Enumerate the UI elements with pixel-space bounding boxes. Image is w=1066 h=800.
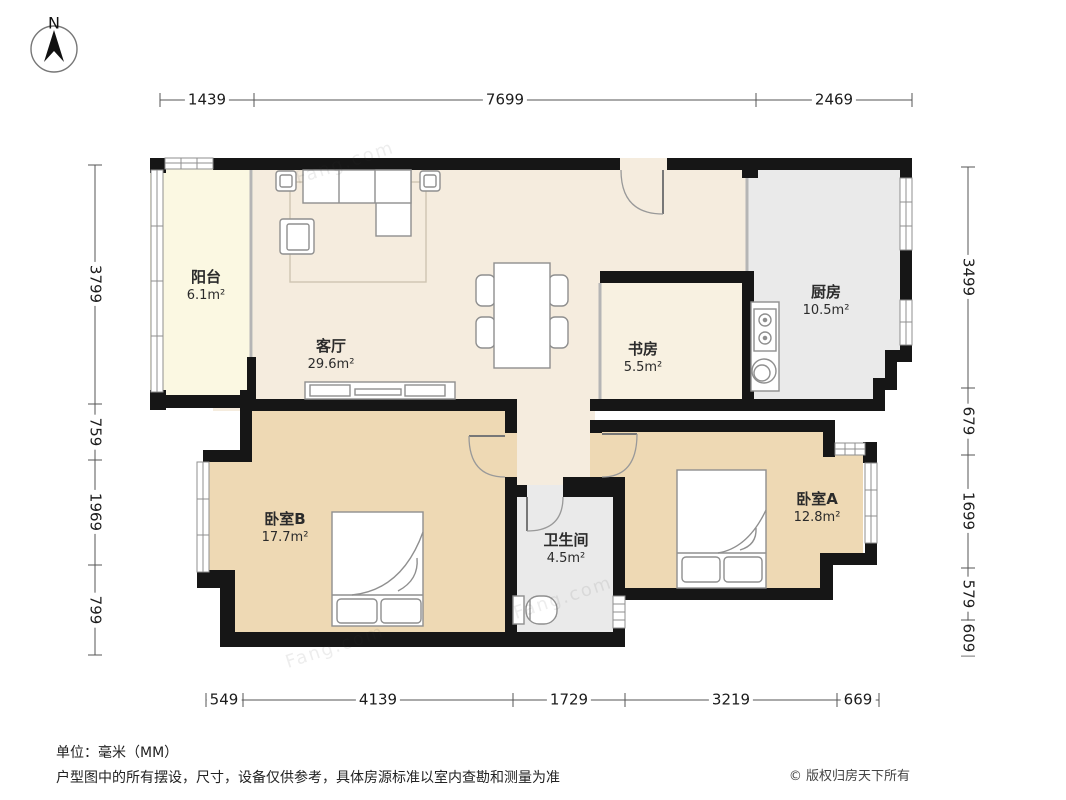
tv-stand [305, 382, 455, 399]
room-area: 12.8m² [794, 509, 841, 526]
dim-top-3: 2469 [812, 93, 856, 108]
dim-bottom-3: 1729 [547, 693, 591, 708]
room-name: 卫生间 [543, 531, 588, 551]
dim-top-1: 1439 [185, 93, 229, 108]
dim-left-1: 3799 [88, 262, 103, 306]
room-floors [150, 158, 905, 632]
room-label-bathroom: 卫生间 4.5m² [543, 531, 588, 567]
study-floor [600, 277, 748, 405]
bedroom-b-door-gap [505, 433, 517, 477]
dim-bottom-2: 4139 [356, 693, 400, 708]
room-name: 客厅 [308, 337, 355, 357]
disclaimer-text: 户型图中的所有摆设，尺寸，设备仅供参考，具体房源标准以室内查勘和测量为准 [56, 767, 560, 787]
room-area: 29.6m² [308, 356, 355, 373]
room-name: 书房 [624, 340, 663, 360]
room-label-balcony: 阳台 6.1m² [187, 268, 226, 304]
dining-table [494, 263, 550, 368]
room-area: 17.7m² [262, 529, 309, 546]
compass-n-label: N [48, 14, 60, 33]
floor-plan-page: N Fang.com Fang.com Fang.com 阳台 6.1m² 客厅… [0, 0, 1066, 800]
dim-right-1: 3499 [961, 255, 976, 299]
dim-left-2: 759 [88, 415, 103, 450]
bed-bedroom-a [677, 470, 766, 588]
dim-line-top [160, 93, 912, 107]
bathroom-door-gap [527, 485, 563, 497]
bedroom-a-top-window [835, 443, 865, 455]
dim-right-3: 1699 [961, 489, 976, 533]
room-name: 卧室A [794, 490, 841, 510]
dim-left-4: 799 [88, 593, 103, 628]
bedroom-a-right-window [865, 463, 877, 543]
room-label-kitchen: 厨房 10.5m² [803, 283, 850, 319]
side-table-left [276, 171, 296, 191]
armchair [280, 219, 314, 254]
floor-plan-drawing [0, 0, 1066, 800]
entrance-door-gap [620, 158, 667, 170]
room-area: 4.5m² [543, 550, 588, 567]
dim-right-4: 579 [961, 577, 976, 612]
dim-line-left [88, 165, 102, 655]
dim-top-2: 7699 [483, 93, 527, 108]
dim-line-bottom [206, 693, 879, 707]
room-area: 6.1m² [187, 287, 226, 304]
room-label-study: 书房 5.5m² [624, 340, 663, 376]
room-area: 10.5m² [803, 302, 850, 319]
room-label-bedroom-a: 卧室A 12.8m² [794, 490, 841, 526]
room-label-bedroom-b: 卧室B 17.7m² [262, 510, 309, 546]
unit-note: 单位：毫米（MM） [56, 742, 178, 762]
dim-bottom-5: 669 [841, 693, 876, 708]
room-name: 阳台 [187, 268, 226, 288]
kitchen-window-lower [900, 300, 912, 345]
balcony-left-window [151, 170, 163, 392]
dim-right-5: 609 [961, 621, 976, 656]
copyright-text: © 版权归房天下所有 [789, 765, 910, 784]
side-table-right [420, 171, 440, 191]
kitchen-stove-sink [751, 302, 779, 391]
kitchen-window-upper [900, 178, 912, 250]
compass-north-icon [31, 26, 77, 72]
room-label-living: 客厅 29.6m² [308, 337, 355, 373]
bathroom-vent-hatch [613, 596, 625, 628]
bedroom-a-door-gap [590, 433, 602, 477]
dim-left-3: 1969 [88, 490, 103, 534]
dim-right-2: 679 [961, 404, 976, 439]
room-name: 厨房 [803, 283, 850, 303]
bed-bedroom-b [332, 512, 423, 626]
bedroom-b-window [197, 462, 209, 572]
dim-bottom-1: 549 [207, 693, 242, 708]
room-name: 卧室B [262, 510, 309, 530]
room-area: 5.5m² [624, 359, 663, 376]
balcony-top-window [165, 158, 213, 169]
dim-bottom-4: 3219 [709, 693, 753, 708]
